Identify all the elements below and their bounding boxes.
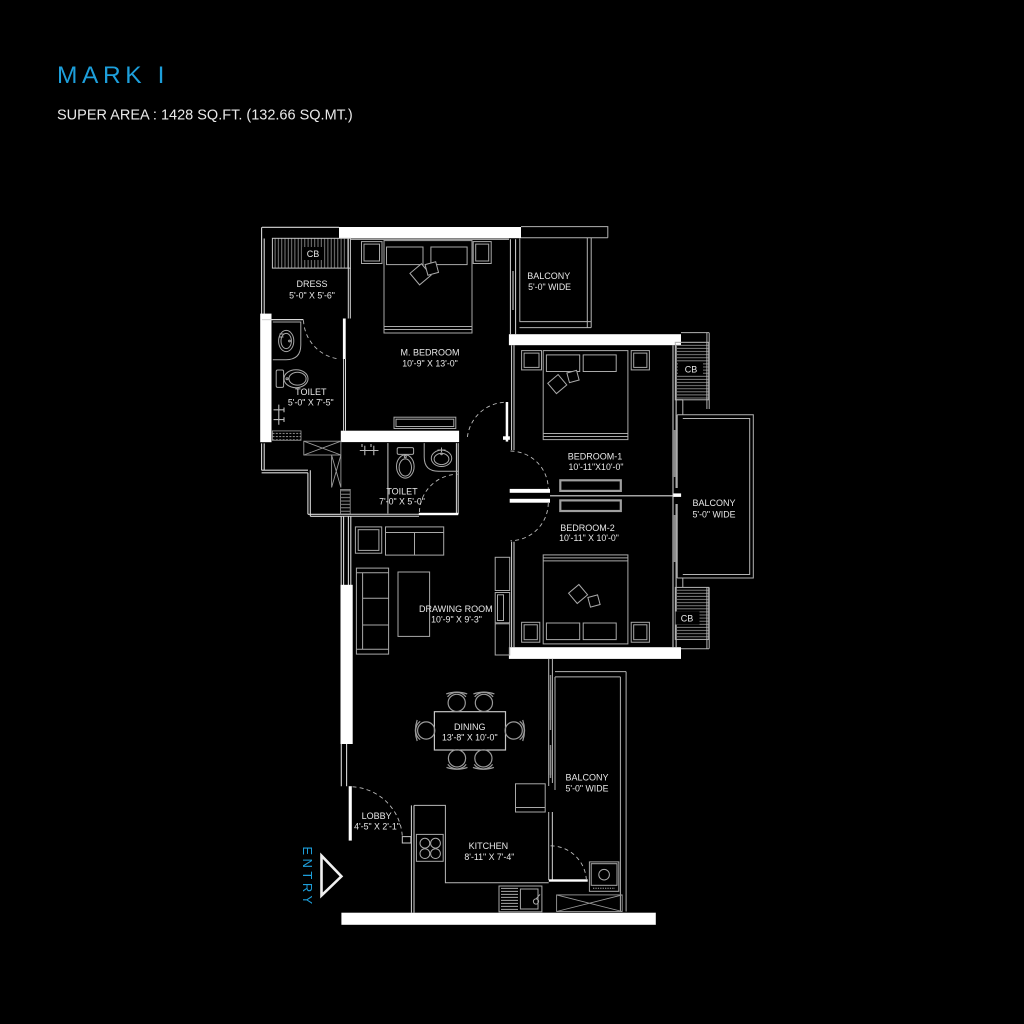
- svg-text:DINING: DINING: [454, 722, 486, 732]
- svg-text:TOILET: TOILET: [386, 486, 418, 496]
- svg-text:5'-0" WIDE: 5'-0" WIDE: [566, 784, 609, 794]
- svg-text:DRESS: DRESS: [296, 279, 327, 289]
- svg-text:CB: CB: [681, 613, 694, 623]
- svg-text:10'-11"X10'-0": 10'-11"X10'-0": [569, 462, 624, 472]
- svg-text:LOBBY: LOBBY: [362, 811, 392, 821]
- svg-text:CB: CB: [307, 249, 320, 259]
- svg-text:DRAWING ROOM: DRAWING ROOM: [419, 604, 493, 614]
- svg-text:MARK I: MARK I: [57, 62, 169, 89]
- svg-text:M. BEDROOM: M. BEDROOM: [400, 347, 459, 357]
- svg-text:5'-0" WIDE: 5'-0" WIDE: [693, 509, 736, 519]
- svg-text:10'-9" X 9'-3": 10'-9" X 9'-3": [431, 615, 482, 625]
- svg-text:CB: CB: [685, 364, 698, 374]
- svg-text:4'-5" X 2'-1": 4'-5" X 2'-1": [354, 821, 400, 831]
- svg-text:5'-0" X 7'-5": 5'-0" X 7'-5": [288, 398, 334, 408]
- svg-text:BALCONY: BALCONY: [527, 271, 570, 281]
- svg-text:BEDROOM-1: BEDROOM-1: [568, 452, 623, 462]
- svg-text:SUPER AREA : 1428 SQ.FT. (132.: SUPER AREA : 1428 SQ.FT. (132.66 SQ.MT.): [57, 108, 353, 124]
- svg-text:13'-8" X 10'-0": 13'-8" X 10'-0": [442, 732, 498, 742]
- svg-text:BALCONY: BALCONY: [565, 772, 608, 782]
- svg-text:5'-0" WIDE: 5'-0" WIDE: [528, 282, 571, 292]
- svg-text:TOILET: TOILET: [295, 387, 327, 397]
- svg-text:10'-11" X 10'-0": 10'-11" X 10'-0": [559, 533, 619, 543]
- svg-text:5'-0" X 5'-6": 5'-0" X 5'-6": [289, 291, 335, 301]
- svg-text:8'-11" X 7'-4": 8'-11" X 7'-4": [464, 852, 514, 862]
- svg-text:BALCONY: BALCONY: [692, 498, 735, 508]
- svg-text:10'-9" X 13'-0": 10'-9" X 13'-0": [402, 359, 458, 369]
- svg-text:ENTRY: ENTRY: [300, 846, 315, 907]
- svg-text:BEDROOM-2: BEDROOM-2: [560, 523, 615, 533]
- svg-text:7'-0" X 5'-0": 7'-0" X 5'-0": [379, 496, 425, 506]
- svg-text:KITCHEN: KITCHEN: [469, 841, 509, 851]
